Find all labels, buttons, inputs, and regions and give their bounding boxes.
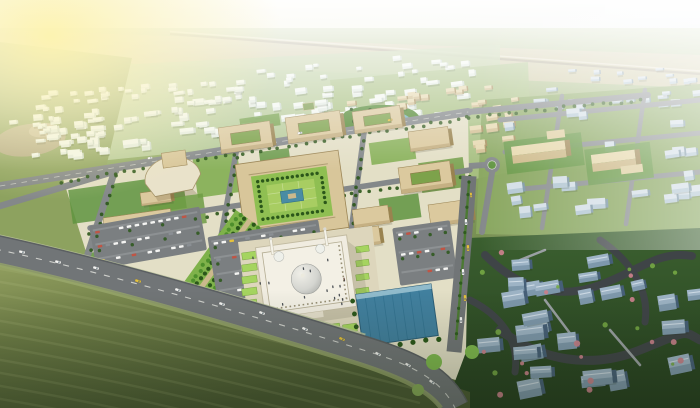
car-windshield [470,195,472,196]
tree [467,180,470,183]
car [464,219,467,225]
car [470,193,472,198]
haze-overlays [0,0,700,408]
tree [461,256,464,259]
car-windshield [462,272,464,273]
car-body [464,219,467,225]
car-body [462,269,465,275]
flowering-tree [499,250,504,255]
tree [480,270,485,275]
tree [650,263,655,268]
tree [556,285,559,288]
car-windshield [467,248,469,249]
building [511,258,533,272]
car-body [467,245,470,251]
car [467,245,470,251]
car-body [470,193,472,198]
bottom-vignette [0,290,700,408]
aerial-render [0,0,700,408]
tree [466,193,469,196]
tree [628,267,632,271]
tree [463,231,466,234]
car [462,269,465,275]
car-windshield [465,222,467,224]
tree [462,244,465,247]
right-haze [480,0,700,250]
tree [673,270,677,274]
tree [465,206,468,209]
sun-glow [0,0,420,300]
render-canvas [0,0,700,408]
tree [459,282,462,285]
flowering-tree [629,273,633,277]
